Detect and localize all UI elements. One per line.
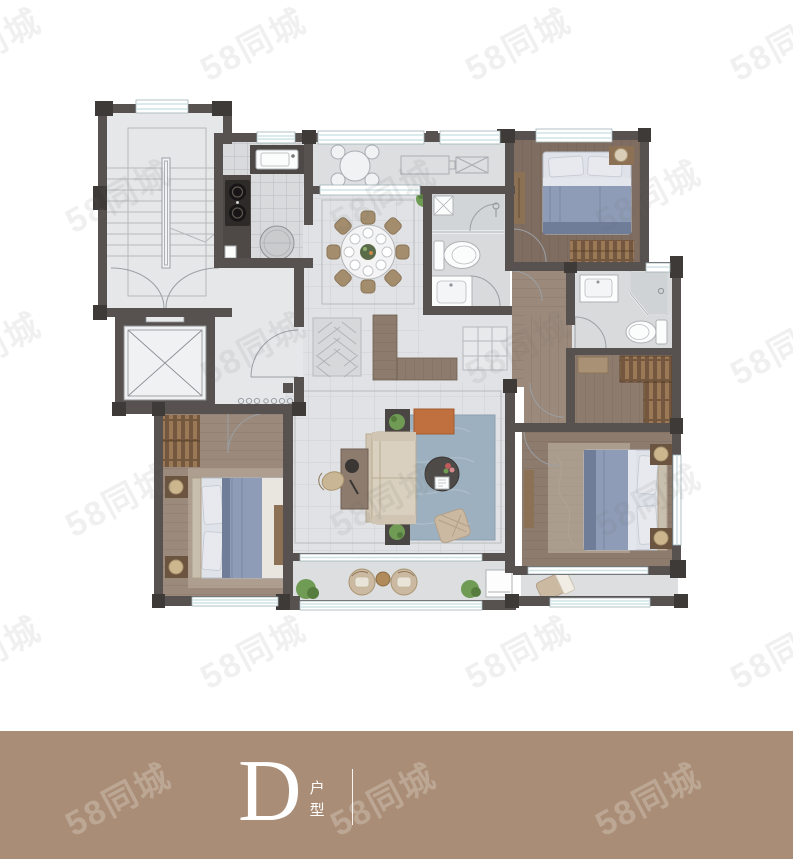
window [257, 132, 295, 143]
sofa [366, 432, 416, 524]
window [536, 129, 612, 142]
unit-label-char: 户 [310, 778, 326, 800]
bed [192, 478, 288, 578]
window [192, 597, 278, 606]
floor-drain [225, 246, 236, 258]
window [300, 601, 482, 610]
patio-table [376, 572, 390, 586]
floor-plan [0, 0, 793, 731]
window [136, 100, 188, 113]
sliding-door [300, 554, 482, 561]
wardrobe [570, 240, 634, 263]
window [318, 131, 424, 144]
patio-chair [391, 569, 417, 595]
entry-rug [313, 318, 361, 377]
plant-stand [385, 409, 410, 435]
unit-letter: D [238, 748, 302, 836]
elevator [115, 313, 215, 409]
stove-burners [225, 180, 250, 226]
kitchen-sink [256, 150, 298, 169]
nightstand [650, 444, 673, 465]
toilet [434, 241, 480, 270]
sliding-door [320, 185, 420, 195]
unit-label: 户型 [310, 778, 326, 822]
banner-divider [352, 769, 353, 825]
wardrobe [162, 415, 200, 467]
window [440, 131, 500, 144]
screenshot-root: 58同城58同城58同城58同城58同城58同城58同城58同城58同城58同城… [0, 0, 793, 859]
patio-chair [349, 569, 375, 595]
accent-bench [414, 409, 454, 434]
window [646, 263, 670, 272]
water-heater [260, 226, 294, 260]
banner-content: D 户型 [238, 731, 353, 859]
banner: D 户型 [0, 731, 793, 859]
washing-machine [434, 196, 453, 215]
dresser [578, 357, 608, 373]
window [673, 455, 681, 545]
nightstand [165, 556, 188, 578]
sink-vanity [580, 275, 618, 302]
toilet [626, 320, 667, 344]
hall-table [463, 327, 507, 370]
coffee-table [425, 457, 459, 491]
headboard [192, 478, 201, 578]
desk [341, 449, 368, 509]
sliding-door [528, 567, 648, 574]
sink-vanity [431, 276, 472, 309]
tv-cabinet [524, 470, 534, 528]
ac-unit [486, 570, 512, 597]
tv-cabinet [274, 505, 283, 565]
nightstand [650, 528, 673, 549]
unit-label-char: 型 [310, 800, 326, 822]
floor-plan-drawing [0, 0, 793, 731]
nightstand [609, 146, 634, 165]
dining-table-set [327, 211, 409, 293]
nightstand [165, 476, 188, 498]
window [550, 598, 650, 607]
